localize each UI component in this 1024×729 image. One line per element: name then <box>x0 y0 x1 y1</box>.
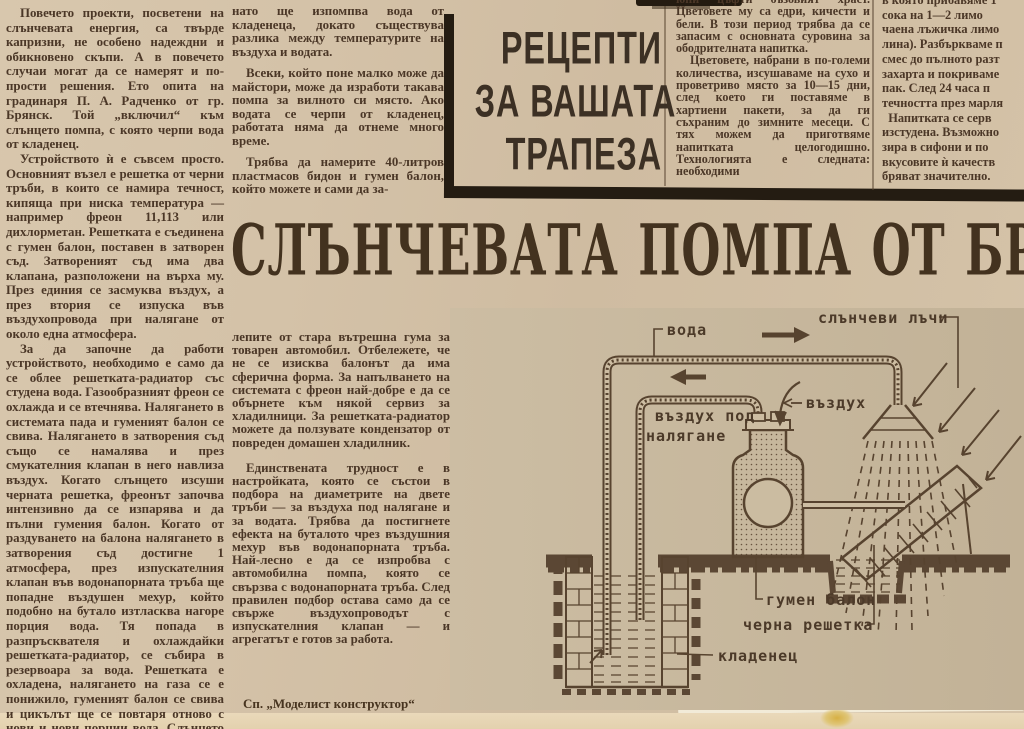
recipes-box-headline: РЕЦЕПТИЗА ВАШАТАТРАПЕЗА <box>475 22 662 181</box>
rubber-balloon <box>744 479 792 527</box>
paragraph: нато ще изпомпва вода от кладенеца, дока… <box>232 5 444 59</box>
text-line: пак. След 24 часа п <box>882 81 1024 96</box>
text-line: смес до пълното разт <box>882 52 1024 67</box>
article-column-left: Повечето проекти, посветени на слънчеват… <box>6 6 224 729</box>
text-line: вкусовите ѝ качеств <box>882 155 1024 170</box>
paragraph: юни цъфти бъзовият храст. Цветовете му с… <box>676 0 870 54</box>
text-line: захарта и покриваме <box>882 67 1024 82</box>
main-headline: СЛЪНЧЕВАТА ПОМПА ОТ БРЯНСК <box>231 210 1024 291</box>
label-air-pressure-2: налягане <box>646 427 726 445</box>
label-air-pressure-1: въздух под <box>655 407 755 425</box>
newspaper-page: Повечето проекти, посветени на слънчеват… <box>0 0 1024 729</box>
paragraph: Повечето проекти, посветени на слънчеват… <box>6 6 224 152</box>
paragraph: Цветовете, набрани в по-големи количеств… <box>676 54 870 177</box>
text-line: течността през марля <box>882 96 1024 111</box>
label-water: вода <box>667 321 707 339</box>
paragraph: Трябва да намерите 40-литров пластмасов … <box>232 156 444 197</box>
paragraph: лепите от стара вътрешна гума за товарен… <box>232 331 450 450</box>
recipes-box-bottom-border <box>444 186 1024 202</box>
label-rubber-balloon: гумен балон <box>766 591 876 609</box>
source-credit: Сп. „Моделист конструктор“ <box>243 696 415 712</box>
text-line: сока на 1—2 лимо <box>882 8 1024 23</box>
label-black-grid: черна решетка <box>743 616 873 634</box>
article-column-2-top: нато ще изпомпва вода от кладенеца, дока… <box>232 5 444 205</box>
text-line: бряват значително. <box>882 169 1024 184</box>
text-line: в която прибавяме 1 <box>882 0 1024 8</box>
label-sun-rays: слънчеви лъчи <box>818 309 948 327</box>
label-air: въздух <box>806 394 866 412</box>
yellow-stain <box>820 708 854 728</box>
label-well: кладенец <box>718 647 798 665</box>
article-column-2-bottom: лепите от стара вътрешна гума за товарен… <box>232 331 450 659</box>
paragraph: Устройството ѝ е съвсем просто. Основния… <box>6 152 224 342</box>
recipes-box-left-border <box>444 14 454 198</box>
recipes-headline-line: РЕЦЕПТИ <box>475 22 662 75</box>
recipes-headline-line: ТРАПЕЗА <box>475 128 662 181</box>
paragraph: За да започне да работи устройството, не… <box>6 342 224 729</box>
column-rule <box>872 0 874 190</box>
text-line: Напитката се серв <box>882 111 1024 126</box>
text-line: чаена лъжичка лимо <box>882 22 1024 37</box>
paragraph: Единствената трудност е в настройката, к… <box>232 462 450 647</box>
recipe-article-column-clipped: в която прибавяме 1сока на 1—2 лимочаена… <box>882 0 1024 184</box>
solar-pump-diagram: вода слънчеви лъчи въздух въздух под нал… <box>450 308 1024 710</box>
paragraph: Всеки, който поне малко може да майстори… <box>232 67 444 148</box>
recipes-headline-line: ЗА ВАШАТА <box>475 75 662 128</box>
text-line: лина). Разбъркваме п <box>882 37 1024 52</box>
text-line: зира в сифони и по <box>882 140 1024 155</box>
text-line: изстудена. Възможно <box>882 125 1024 140</box>
recipe-article-column: юни цъфти бъзовият храст. Цветовете му с… <box>676 0 870 177</box>
